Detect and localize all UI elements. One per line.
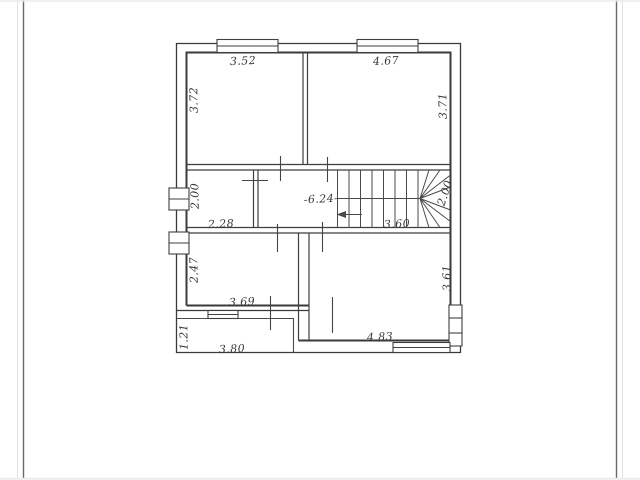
window-top-right xyxy=(357,40,418,53)
dim-top-left-room-width: 3.52 xyxy=(230,54,257,68)
dim-top-left-room-depth: 3.72 xyxy=(187,87,200,113)
floor-plan-page: 3.52 4.67 3.72 3.71 2.00 2.28 -6.24- 3.6… xyxy=(0,0,640,480)
dim-balcony-width: 3.80 xyxy=(219,342,246,356)
window-right-lower xyxy=(449,305,462,346)
dim-bottom-right-room-depth: 3.61 xyxy=(440,265,453,291)
window-left-upper xyxy=(169,188,189,210)
window-balcony-wall xyxy=(208,311,238,319)
dim-top-right-room-width: 4.67 xyxy=(373,54,400,68)
dim-top-right-room-depth: 3.71 xyxy=(436,93,449,119)
floor-plan-drawing xyxy=(0,0,640,480)
dim-bottom-left-room-depth: 2.47 xyxy=(187,257,200,283)
dim-left-small-room-depth: 2.00 xyxy=(188,183,201,209)
dim-stair-run: 3.60 xyxy=(384,217,411,231)
window-left-lower xyxy=(169,232,189,254)
dim-left-small-room-width: 2.28 xyxy=(208,217,235,231)
dim-bottom-left-room-width: 3.69 xyxy=(229,295,256,309)
dim-bottom-right-room-width: 4.83 xyxy=(367,330,394,344)
page-edge-lines xyxy=(0,0,640,479)
dim-hallway-length: -6.24- xyxy=(304,192,339,207)
window-bottom-right xyxy=(393,343,450,353)
window-top-left xyxy=(217,40,278,53)
dim-balcony-depth: 1.21 xyxy=(177,324,190,350)
